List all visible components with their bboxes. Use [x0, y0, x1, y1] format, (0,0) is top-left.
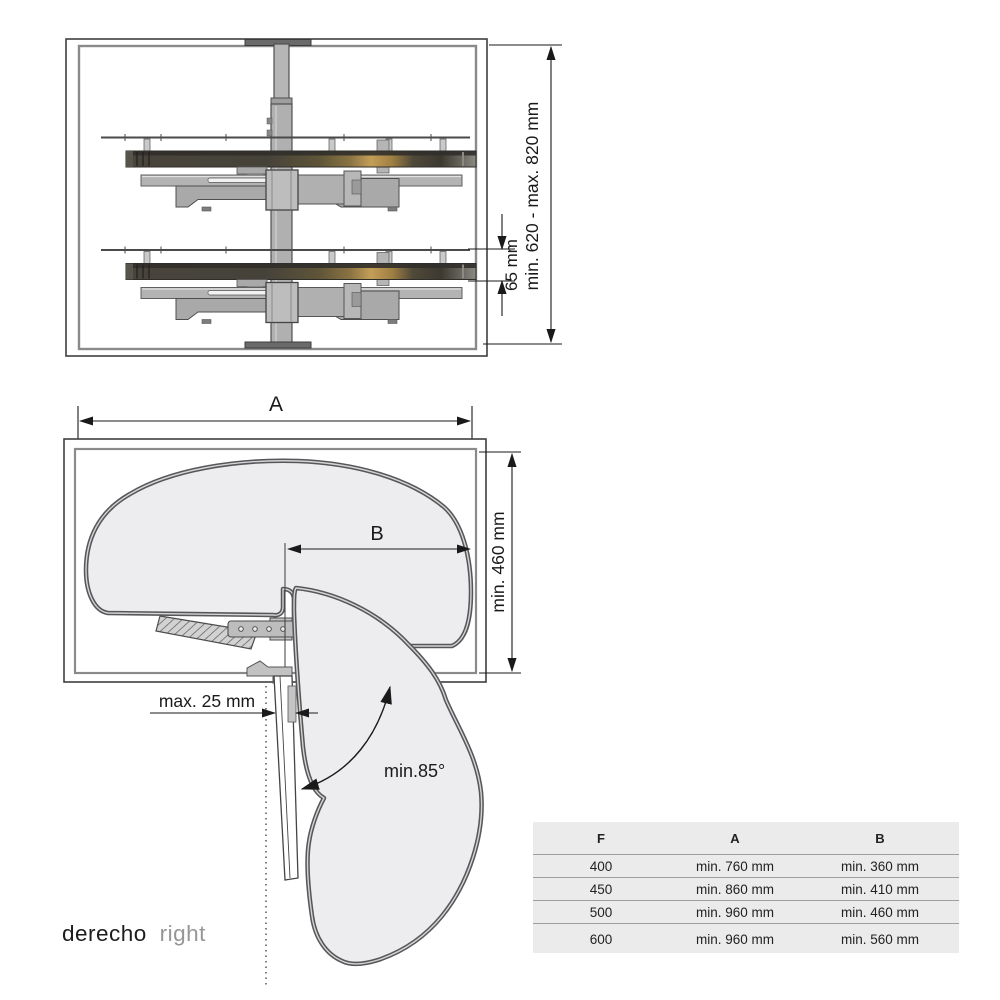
spec-table-header: F A B: [533, 822, 959, 855]
orientation-caption: derecho right: [62, 921, 206, 947]
cell-a: min. 860 mm: [669, 882, 801, 897]
spec-table-row: 400 min. 760 mm min. 360 mm: [533, 855, 959, 878]
cell-f: 450: [533, 882, 669, 897]
cell-b: min. 560 mm: [801, 932, 959, 947]
diagram-page: 65 mm min. 620 - max. 820 mm A: [0, 0, 1000, 1000]
dimension-spec-table: F A B 400 min. 760 mm min. 360 mm 450 mi…: [533, 822, 959, 953]
top-view: A: [64, 393, 521, 988]
cell-b: min. 360 mm: [801, 859, 959, 874]
cell-b: min. 460 mm: [801, 905, 959, 920]
front-view: 65 mm min. 620 - max. 820 mm: [66, 39, 562, 356]
col-header-b: B: [801, 831, 959, 846]
cell-b: min. 410 mm: [801, 882, 959, 897]
col-header-f: F: [533, 831, 669, 846]
open-door-panel: [274, 676, 298, 880]
spec-table-row: 450 min. 860 mm min. 410 mm: [533, 878, 959, 901]
dim-swing-angle-label: min.85°: [384, 761, 445, 781]
cell-a: min. 760 mm: [669, 859, 801, 874]
spec-table-row: 600 min. 960 mm min. 560 mm: [533, 924, 959, 954]
dim-width-a-label: A: [269, 393, 283, 416]
dim-door-gap-label: max. 25 mm: [159, 691, 255, 711]
dim-cabinet-height-label: min. 620 - max. 820 mm: [522, 102, 542, 291]
dim-depth-label: min. 460 mm: [488, 511, 508, 612]
cell-f: 500: [533, 905, 669, 920]
dim-inner-width-b-label: B: [370, 523, 383, 545]
dim-shelf-gap-label: 65 mm: [502, 239, 521, 291]
cell-f: 600: [533, 932, 669, 947]
cell-f: 400: [533, 859, 669, 874]
col-header-a: A: [669, 831, 801, 846]
cell-a: min. 960 mm: [669, 905, 801, 920]
orientation-caption-secondary: right: [160, 921, 206, 946]
orientation-caption-primary: derecho: [62, 921, 147, 946]
spec-table-row: 500 min. 960 mm min. 460 mm: [533, 901, 959, 924]
cell-a: min. 960 mm: [669, 932, 801, 947]
